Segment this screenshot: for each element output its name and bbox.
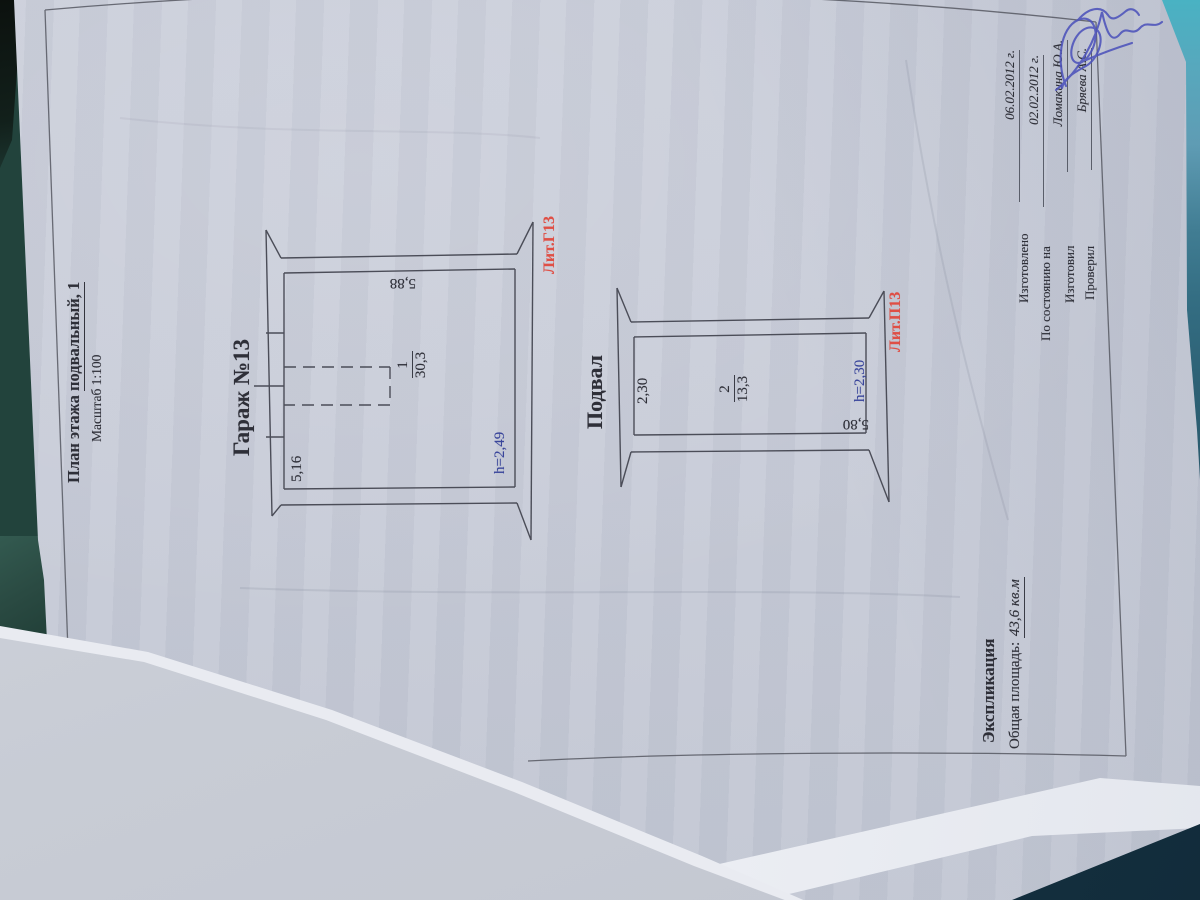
basement-room-number: 2 (718, 385, 733, 393)
basement-title: Подвал (582, 345, 609, 429)
page-title-floor: подвальный, 1 (64, 282, 85, 391)
stamp-row-prepared-label: Изготовил (1062, 229, 1078, 303)
garage-room-number: 1 (396, 361, 411, 369)
total-area-line: Общая площадь: 43,6 кв.м (1006, 531, 1024, 749)
stamp-row-prepared-value: Ломакина Ю.А. (1050, 40, 1068, 172)
basement-dim-depth: 2,30 (634, 364, 652, 404)
garage-title: Гараж №13 (228, 328, 256, 456)
photo-of-document: План этажа подвальный, 1 Масштаб 1:100 Г… (0, 0, 1200, 900)
page-title-prefix: План этажа (64, 391, 83, 483)
total-area-value: 43,6 кв.м (1007, 577, 1025, 638)
garage-liter-label: Лит.Г13 (540, 216, 560, 274)
page-title: План этажа подвальный, 1 (64, 259, 84, 483)
garage-room-area-fraction: 1 30,3 (396, 344, 429, 386)
explication-heading: Экспликация (979, 629, 1000, 743)
basement-room-area-fraction: 2 13,3 (718, 368, 751, 410)
stamp-row-asof-value: 02.02.2012 г. (1026, 55, 1044, 207)
total-area-label: Общая площадь: (1007, 642, 1023, 749)
garage-room-area: 30,3 (414, 352, 429, 378)
stamp-row-checked-value: Бряева А.С. (1074, 48, 1092, 170)
stamp-row-asof-label: По состоянию на (1038, 221, 1054, 341)
stamp-row-made-value: 06.02.2012 г. (1002, 50, 1020, 202)
basement-liter-label: Лит.П13 (886, 292, 906, 352)
basement-ceiling-height: h=2,30 (851, 348, 869, 402)
stamp-row-made-label: Изготовлено (1016, 213, 1032, 303)
garage-ceiling-height: h=2,49 (491, 420, 509, 474)
basement-room-area: 13,3 (736, 376, 751, 402)
garage-dim-width: 5,88 (382, 274, 416, 291)
scale-label: Масштаб 1:100 (89, 317, 105, 442)
garage-dim-depth: 5,16 (288, 442, 306, 482)
stamp-row-checked-label: Проверил (1082, 230, 1098, 300)
basement-dim-width: 5,80 (835, 415, 869, 432)
